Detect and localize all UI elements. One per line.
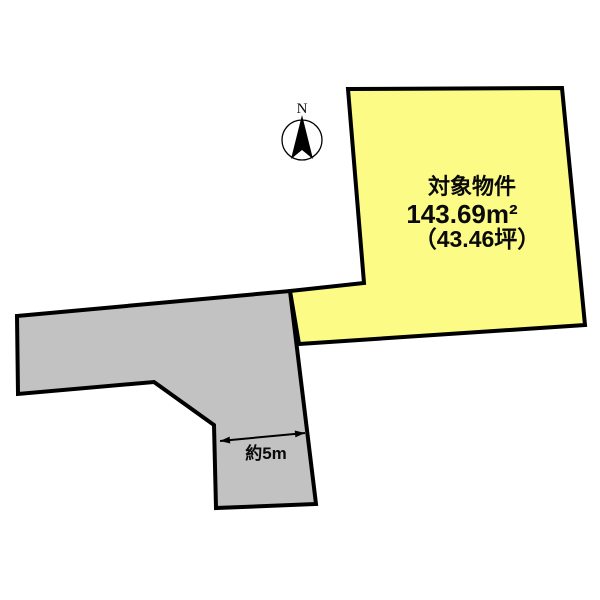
road-area bbox=[17, 291, 316, 508]
compass: N bbox=[282, 101, 322, 160]
site-plan-canvas: N 対象物件 143.69m² （43.46坪） 約5m bbox=[0, 0, 600, 600]
property-title: 対象物件 bbox=[428, 174, 516, 199]
site-plan-drawing: N 対象物件 143.69m² （43.46坪） 約5m bbox=[0, 0, 600, 600]
property-area-tsubo: （43.46坪） bbox=[414, 226, 541, 252]
property-area-m2: 143.69m² bbox=[406, 199, 518, 229]
north-label: N bbox=[297, 101, 308, 117]
road-width-label: 約5m bbox=[245, 443, 287, 463]
